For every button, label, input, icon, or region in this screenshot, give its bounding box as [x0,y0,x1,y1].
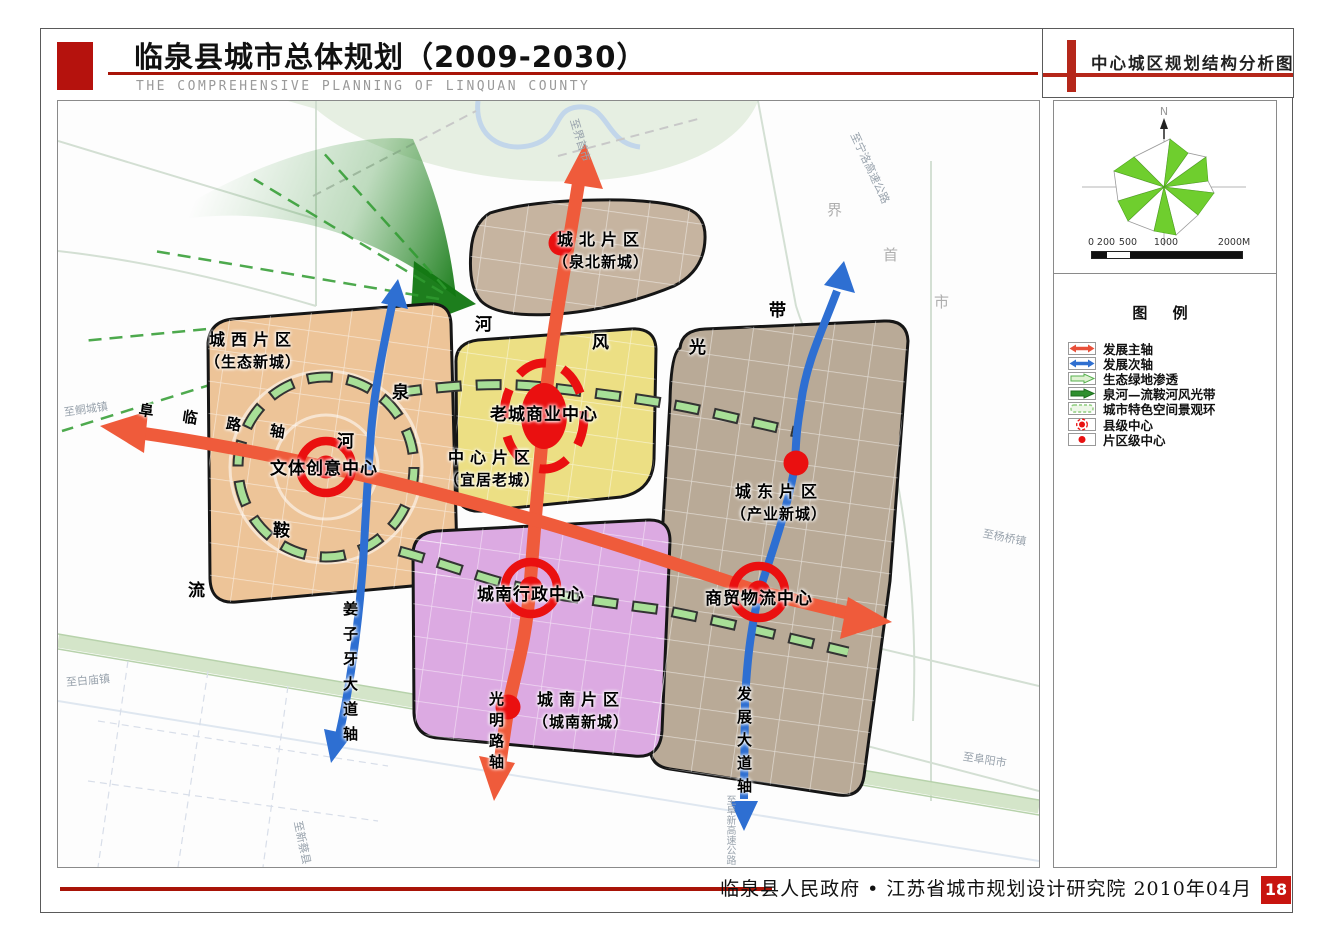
county-center-icon [1068,418,1096,431]
page-title: 临泉县城市总体规划（2009-2030） [134,34,646,76]
scale-tick: 1000 [1154,237,1178,248]
river-char: 河 [337,427,354,452]
label-district-east: 城东片区 （产业新城） [690,480,868,526]
label-axis-jiangziya: 姜子牙大道轴 [340,601,361,761]
label-district-north: 城北片区 （泉北新城） [512,228,690,274]
scale-tick: 2000M [1218,237,1250,248]
light-green-arrow-icon [1068,372,1096,385]
river-char: 鞍 [273,516,290,541]
scale-tick: 500 [1119,237,1137,248]
blue-double-arrow-icon [1068,357,1096,370]
corridor-char: 带 [769,296,786,321]
district-center-dot-east [784,451,809,476]
north-arrow-icon [1160,118,1168,129]
green-arrow-icon [1068,387,1096,400]
corridor-char: 泉 [392,378,409,403]
label-center-logistics: 商贸物流中心 [664,584,854,609]
compass-box: N 0 200 500 1000 2000M [1053,100,1277,274]
scale-bar [1091,251,1243,259]
boundary-char: 市 [934,291,949,312]
road-label-fuxin-expwy: 至阜新高速公路 [722,795,737,865]
legend-title: 图 例 [1054,302,1276,323]
scale-tick: 0 [1088,237,1094,248]
page-number-badge: 18 [1261,876,1291,904]
label-district-south: 城南片区 （城南新城） [492,688,670,734]
red-logo-square [57,42,93,90]
footer-credit: 临泉县人民政府 • 江苏省城市规划设计研究院 2010年04月 [720,874,1252,901]
label-axis-guangming: 光明路轴 [486,691,507,783]
page-subtitle: THE COMPREHENSIVE PLANNING OF LINQUAN CO… [136,79,590,94]
label-axis-fazhan: 发展大道轴 [734,686,755,808]
boundary-char: 首 [883,244,898,265]
river-char: 流 [188,576,205,601]
label-center-commerce: 老城商业中心 [449,400,639,425]
title-underline [108,72,1038,75]
footer-rule [60,887,772,891]
boundary-char: 界 [827,199,842,220]
legend-box: 图 例 发展主轴 发展次轴 生态绿地渗透 [1053,273,1277,868]
district-center-icon [1068,433,1096,446]
planning-map: 城北片区 （泉北新城） 城西片区 （生态新城） 中心片区 （宜居老城） 城东片区… [57,100,1040,868]
label-center-admin: 城南行政中心 [436,580,626,605]
green-dashed-ring-icon [1068,402,1096,415]
panel-title: 中心城区规划结构分析图 [1091,50,1295,74]
corridor-char: 风 [592,328,609,353]
label-district-west: 城西片区 （生态新城） [164,328,342,374]
corridor-char: 河 [475,310,492,335]
plan-sheet: 临泉县城市总体规划（2009-2030） THE COMPREHENSIVE P… [0,0,1324,936]
label-center-culture: 文体创意中心 [229,454,419,479]
panel-title-box: 中心城区规划结构分析图 [1042,28,1294,98]
wind-rose: N [1054,101,1276,246]
north-label: N [1160,105,1168,118]
red-double-arrow-icon [1068,342,1096,355]
corridor-char: 光 [689,333,706,358]
label-district-center: 中心片区 （宜居老城） [403,446,581,492]
panel-title-bar [1067,40,1076,92]
legend-item-district-center: 片区级中心 [1068,431,1166,447]
scale-tick: 200 [1097,237,1115,248]
